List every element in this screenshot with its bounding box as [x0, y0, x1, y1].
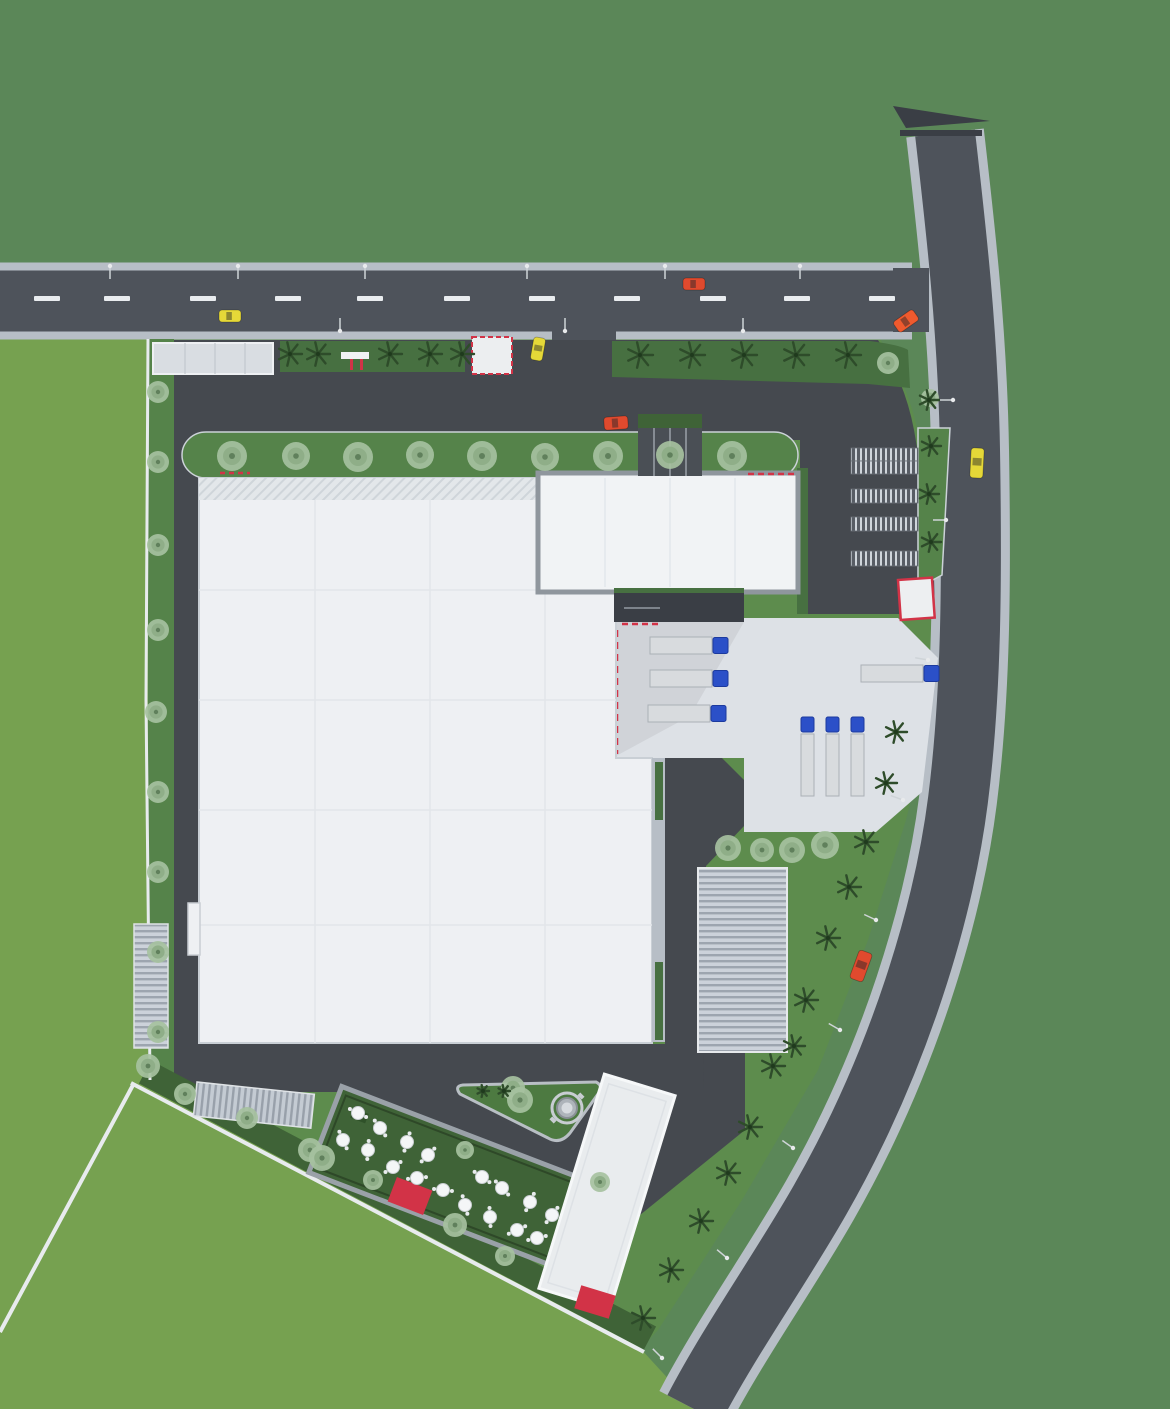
light-head [741, 329, 745, 333]
chair [408, 1131, 412, 1135]
deciduous-tree [593, 441, 623, 471]
palm-trunk [748, 1125, 752, 1129]
chair [345, 1146, 349, 1150]
tree-center [371, 1178, 375, 1182]
tree-center [542, 454, 548, 460]
deciduous-tree [145, 701, 167, 723]
chair [465, 1212, 469, 1216]
annex-roof [538, 473, 798, 592]
moving-truck [861, 665, 939, 682]
tree-center [156, 1030, 160, 1034]
chair [373, 1119, 377, 1123]
chair [450, 1189, 454, 1193]
gate-canopy-slab [900, 130, 982, 136]
deciduous-tree [467, 441, 497, 471]
tree-center [725, 845, 730, 850]
deciduous-tree [147, 1021, 169, 1043]
truck-trailer [801, 734, 814, 796]
deciduous-tree [217, 441, 247, 471]
table-top [362, 1144, 375, 1157]
chair [507, 1232, 511, 1236]
chair [494, 1179, 498, 1183]
tree-center [146, 1064, 151, 1069]
chair [487, 1180, 491, 1184]
palm-trunk [460, 352, 464, 356]
tree-center [789, 847, 794, 852]
chair [364, 1115, 368, 1119]
deciduous-tree [147, 781, 169, 803]
deciduous-tree [136, 1054, 160, 1078]
light-head [944, 518, 948, 522]
tree-center [154, 710, 158, 714]
lane-dash [529, 296, 555, 301]
chair [424, 1175, 428, 1179]
deciduous-tree [174, 1083, 196, 1105]
street-bench [341, 352, 369, 359]
lane-dash [275, 296, 301, 301]
table-top [546, 1209, 559, 1222]
deciduous-tree [309, 1145, 335, 1171]
lane-dash [869, 296, 895, 301]
table-top [496, 1182, 509, 1195]
tree-center [667, 452, 673, 458]
chair [545, 1220, 549, 1224]
truck-cab [711, 706, 726, 722]
deciduous-tree [406, 441, 434, 469]
truck-cab [713, 671, 728, 687]
palm-trunk [641, 1316, 645, 1320]
tree-center [760, 848, 765, 853]
light-head [798, 264, 802, 268]
table-top [524, 1196, 537, 1209]
loading-dock [614, 588, 744, 622]
light-head [363, 264, 367, 268]
deciduous-tree [147, 534, 169, 556]
tree-center [605, 453, 611, 459]
car-windshield [972, 458, 981, 466]
car [219, 310, 241, 322]
car [604, 416, 629, 431]
palm-trunk [699, 1219, 703, 1223]
light-head [725, 1256, 729, 1260]
chair [506, 1193, 510, 1197]
light-head [108, 264, 112, 268]
tree-center [453, 1223, 458, 1228]
chair [523, 1224, 527, 1228]
deciduous-tree [715, 835, 741, 861]
tree-center [479, 453, 485, 459]
ribbed-canopy-building [698, 868, 787, 1052]
palm-trunk [826, 936, 830, 940]
palm-trunk [846, 353, 850, 357]
lane-dash [104, 296, 130, 301]
truck-cab [801, 717, 814, 732]
deciduous-tree [779, 837, 805, 863]
tree-center [156, 950, 160, 954]
palm-trunk [316, 352, 320, 356]
bench-red-post-1 [350, 359, 353, 370]
palm-trunk [792, 1044, 796, 1048]
palm-trunk [638, 353, 642, 357]
palm-trunk [771, 1064, 775, 1068]
deciduous-tree [443, 1213, 467, 1237]
tree-center [822, 842, 828, 848]
car [683, 278, 705, 290]
chair [488, 1224, 492, 1228]
docked-truck [650, 670, 728, 687]
palm-trunk [388, 352, 392, 356]
deciduous-tree [363, 1170, 383, 1190]
warehouse-west-dock [188, 903, 200, 955]
light-head [663, 264, 667, 268]
chair [383, 1170, 387, 1174]
tree-center [156, 628, 160, 632]
parked-truck-vertical [826, 717, 839, 796]
docked-truck [648, 705, 726, 722]
deciduous-tree [811, 831, 839, 859]
lane-dash [34, 296, 60, 301]
tree-center [319, 1155, 324, 1160]
palm-trunk [864, 840, 868, 844]
deciduous-tree [877, 352, 899, 374]
tree-center [598, 1180, 602, 1184]
tree-center [463, 1148, 467, 1152]
tree-center [355, 454, 361, 460]
palm-trunk [502, 1089, 506, 1093]
parked-truck-vertical [801, 717, 814, 796]
chair [532, 1192, 536, 1196]
truck-cab [924, 666, 939, 682]
car [970, 448, 985, 479]
deciduous-tree [717, 441, 747, 471]
chair [544, 1234, 548, 1238]
parking-row [851, 517, 918, 531]
light-head [660, 1356, 664, 1360]
parking-row [851, 461, 918, 474]
deciduous-tree [147, 861, 169, 883]
table-top [387, 1161, 400, 1174]
chair [473, 1170, 477, 1174]
lane-dash [614, 296, 640, 301]
chair [526, 1238, 530, 1242]
light-head [951, 398, 955, 402]
light-head [791, 1146, 795, 1150]
table-top [476, 1171, 489, 1184]
palm-trunk [428, 352, 432, 356]
palm-trunk [669, 1268, 673, 1272]
palm-trunk [894, 730, 898, 734]
palm-trunk [847, 885, 851, 889]
truck-trailer [648, 705, 710, 722]
tree-center [729, 453, 735, 459]
deciduous-tree [147, 619, 169, 641]
deciduous-tree [343, 442, 373, 472]
tree-center [417, 452, 423, 458]
table-top [411, 1172, 424, 1185]
chair [367, 1139, 371, 1143]
chair [348, 1107, 352, 1111]
tree-center [156, 543, 160, 547]
light-head [338, 329, 342, 333]
palm-trunk [726, 1171, 730, 1175]
car-windshield [226, 312, 232, 320]
palm-trunk [884, 781, 888, 785]
truck-trailer [650, 637, 712, 654]
deciduous-tree [495, 1246, 515, 1266]
parking-row [851, 448, 918, 461]
chair [524, 1208, 528, 1212]
car-windshield [690, 280, 696, 288]
bus-shelter-canopy [153, 343, 273, 374]
chair [365, 1157, 369, 1161]
palm-trunk [804, 998, 808, 1002]
site-plan-stage [0, 0, 1170, 1409]
south-service-road [170, 1044, 745, 1092]
lane-dash [190, 296, 216, 301]
light-head [525, 264, 529, 268]
palm-trunk [927, 492, 931, 496]
light-head [874, 918, 878, 922]
light-head [563, 329, 567, 333]
lane-dash [444, 296, 470, 301]
chair [402, 1149, 406, 1153]
lane-dash [784, 296, 810, 301]
deciduous-tree [750, 838, 774, 862]
truck-cab [713, 638, 728, 654]
walkway-planter-north [655, 762, 663, 820]
dock-hedge [614, 588, 744, 593]
chair [488, 1206, 492, 1210]
tree-center [886, 361, 890, 365]
deciduous-tree [147, 451, 169, 473]
palm-trunk [288, 352, 292, 356]
table-top [437, 1184, 450, 1197]
chair [399, 1160, 403, 1164]
tree-center [156, 460, 160, 464]
palm-trunk [929, 540, 933, 544]
chair [337, 1130, 341, 1134]
tree-center [156, 390, 160, 394]
warehouse-roof-hatch [199, 478, 539, 500]
site-plan-rendering [0, 0, 1170, 1409]
palm-trunk [742, 353, 746, 357]
deciduous-tree [282, 442, 310, 470]
palm-trunk [929, 444, 933, 448]
palm-trunk [927, 398, 931, 402]
parking-row [851, 489, 918, 503]
light-head [838, 1028, 842, 1032]
parked-truck-vertical [851, 717, 864, 796]
tree-center [293, 453, 299, 459]
tree-center [183, 1092, 187, 1096]
west-service-road [170, 438, 198, 1048]
deciduous-tree [590, 1172, 610, 1192]
tree-center [517, 1097, 522, 1102]
deciduous-tree [456, 1141, 474, 1159]
light-head [236, 264, 240, 268]
chair [420, 1159, 424, 1163]
tree-center [156, 870, 160, 874]
chair [383, 1133, 387, 1137]
table-top [459, 1199, 472, 1212]
truck-cab [826, 717, 839, 732]
truck-trailer [851, 734, 864, 796]
light-head [926, 658, 930, 662]
chair [432, 1187, 436, 1191]
palm-trunk [794, 353, 798, 357]
tree-center [229, 453, 235, 459]
entry-kiosk-canopy [472, 337, 512, 374]
parking-row [851, 551, 918, 566]
tree-center [156, 790, 160, 794]
table-top [422, 1149, 435, 1162]
table-top [352, 1107, 365, 1120]
table-top [374, 1122, 387, 1135]
table-top [401, 1136, 414, 1149]
truck-trailer [861, 665, 923, 682]
walkway-planter-south [655, 962, 663, 1040]
bench-red-post-2 [360, 359, 363, 370]
light-head [901, 798, 905, 802]
tree-center [245, 1116, 249, 1120]
docked-truck [650, 637, 728, 654]
table-top [511, 1224, 524, 1237]
table-top [531, 1232, 544, 1245]
chair [555, 1206, 559, 1210]
truck-trailer [650, 670, 712, 687]
chair [432, 1147, 436, 1151]
lane-dash [357, 296, 383, 301]
deciduous-tree [147, 381, 169, 403]
deciduous-tree [531, 443, 559, 471]
dock-gatehouse [898, 578, 935, 620]
chair [461, 1194, 465, 1198]
deciduous-tree [236, 1107, 258, 1129]
deciduous-tree [656, 441, 684, 469]
deciduous-tree [147, 941, 169, 963]
table-top [337, 1134, 350, 1147]
fountain-dome [562, 1103, 573, 1114]
truck-trailer [826, 734, 839, 796]
table-top [484, 1211, 497, 1224]
palm-trunk [690, 353, 694, 357]
dock-gatehouse-roof [898, 578, 935, 620]
truck-cab [851, 717, 864, 732]
tree-center [503, 1254, 507, 1258]
lane-dash [700, 296, 726, 301]
car-windshield [612, 418, 619, 427]
palm-trunk [481, 1089, 485, 1093]
chair [406, 1177, 410, 1181]
